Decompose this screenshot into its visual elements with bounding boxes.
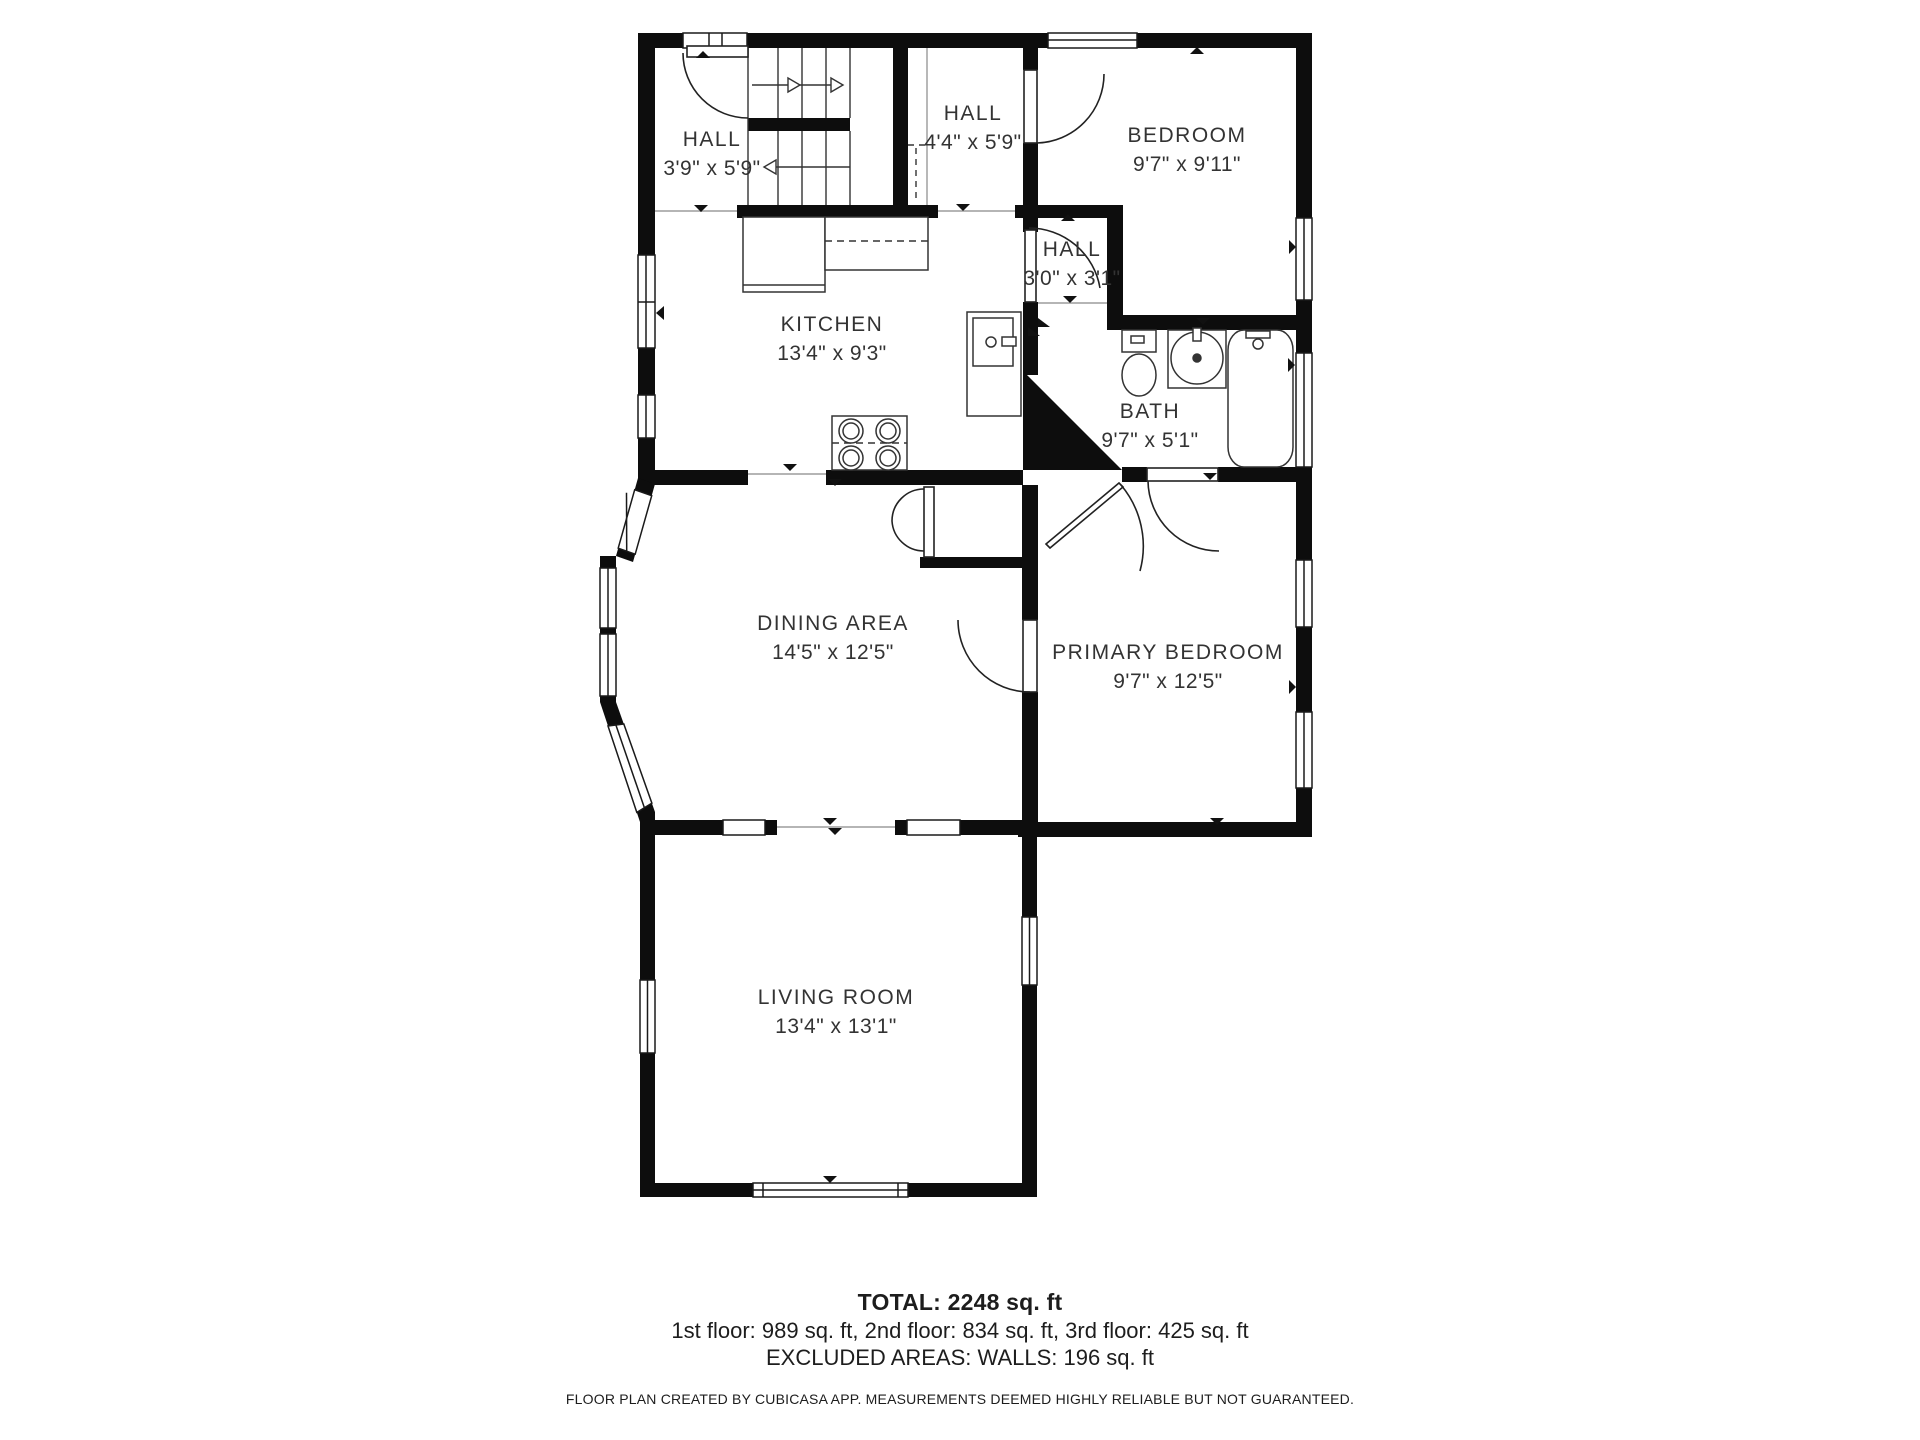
wall-bath-bottom-a [1122,467,1147,482]
stove-icon [832,416,907,470]
opening-lines [655,211,1107,827]
sink-icon [1168,328,1226,388]
summary-excluded: EXCLUDED AREAS: WALLS: 196 sq. ft [0,1345,1920,1371]
summary-floors: 1st floor: 989 sq. ft, 2nd floor: 834 sq… [0,1318,1920,1344]
bathtub-icon [1228,330,1293,467]
windows [600,33,1312,1197]
wall-hallband-a [737,205,938,218]
window-right-bath [1296,353,1312,467]
wall-bedroom-stub-top [1023,48,1038,70]
wall-stairs-center [748,118,850,131]
wall-closet-bottom [920,557,1022,568]
wall-bath-bottom-b [1218,467,1312,482]
door-hall-top-left [683,46,748,118]
window-top-bedroom [1048,33,1137,48]
wall-dining-living-4 [960,820,1022,835]
window-bottom-living [753,1183,908,1197]
walls [600,33,1312,1197]
door-bath [1147,468,1219,551]
window-bay-top [618,490,652,555]
wall-dining-primary-lower [1022,692,1038,822]
wall-bottom-primary [1018,822,1312,837]
wall-kitchen-bottom-left [652,470,748,485]
wall-stairs-right [893,48,908,205]
refrigerator-icon [967,312,1021,416]
wall-kitchen-right [1023,302,1038,375]
door-bedroom [1024,70,1104,143]
floorplan-canvas [0,0,1920,1440]
door-dining [958,620,1037,692]
toilet-icon [1122,330,1156,396]
window-bay-bottom [608,724,652,812]
wall-right-living [1022,820,1037,1197]
summary-total: TOTAL: 2248 sq. ft [0,1289,1920,1316]
wall-dining-living-3 [895,820,907,835]
window-interior-1 [723,820,765,835]
kitchen-counter-icon [743,217,928,292]
window-left-kitchen-1 [638,255,655,348]
window-interior-2 [907,820,960,835]
floor-plan-page: HALL 3'9" x 5'9" HALL 4'4" x 5'9" BEDROO… [0,0,1920,1440]
wall-bedroom-stub-bottom [1023,143,1038,205]
wall-bath-top [1107,315,1312,330]
window-right-bedroom [1296,218,1312,300]
wall-hall-small-right [1107,218,1123,330]
door-hall-small [1025,228,1100,302]
wall-dining-primary-upper [1022,485,1038,620]
summary-credit: FLOOR PLAN CREATED BY CUBICASA APP. MEAS… [0,1391,1920,1407]
wall-kitchen-bottom [826,470,1023,485]
door-closet-bifold [892,487,934,557]
window-bay-mid-2 [600,634,616,696]
wall-diagonal-triangle [1023,371,1122,470]
window-right-primary-1 [1296,560,1312,627]
window-right-living [1022,917,1037,985]
door-primary-diagonal [1046,483,1143,571]
window-left-kitchen-2 [638,395,655,438]
window-left-living [640,980,655,1053]
wall-dining-living-1 [650,820,723,835]
wall-dining-living-2 [765,820,777,835]
window-bay-mid-1 [600,568,616,628]
window-right-primary-2 [1296,712,1312,788]
